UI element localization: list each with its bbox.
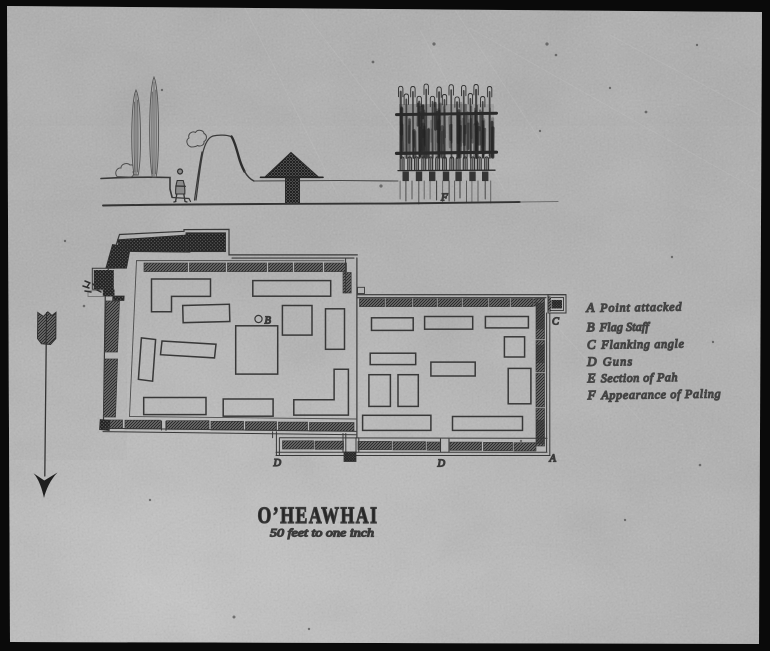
svg-text:DGuns: DGuns: [586, 353, 633, 369]
svg-text:D: D: [273, 458, 282, 469]
svg-text:O’HEAWHAI: O’HEAWHAI: [258, 503, 379, 529]
svg-text:B: B: [265, 316, 272, 327]
svg-text:FAppearance of Paling: FAppearance of Paling: [587, 386, 721, 403]
svg-text:ESection of Pah: ESection of Pah: [586, 369, 677, 385]
svg-text:D: D: [437, 459, 446, 470]
svg-text:C: C: [552, 317, 560, 328]
svg-text:F: F: [440, 192, 448, 204]
svg-text:50 feet to one inch: 50 feet to one inch: [270, 528, 374, 540]
svg-text:A: A: [549, 454, 557, 465]
svg-text:APoint attacked: APoint attacked: [585, 299, 682, 315]
svg-text:CFlanking angle: CFlanking angle: [587, 336, 685, 352]
